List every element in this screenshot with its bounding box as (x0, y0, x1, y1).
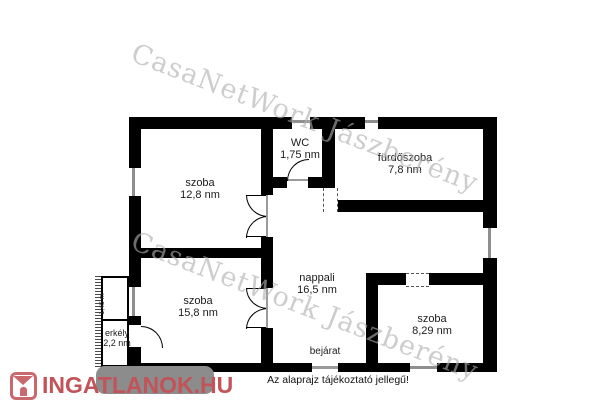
room-area: 2,2 nm (98, 338, 136, 348)
room-area: 1,75 nm (270, 149, 330, 161)
window (132, 287, 135, 316)
entrance-door (312, 366, 338, 369)
room-area: 7,8 nm (355, 164, 455, 176)
ingatlanok-house-icon (10, 372, 37, 400)
room-label-furdoszoba: fürdőszoba 7,8 nm (355, 152, 455, 176)
wall-opening-dashed (323, 188, 338, 212)
wall-segment (261, 237, 273, 288)
room-name: szoba (158, 295, 238, 307)
wall-segment (141, 248, 261, 258)
door-arc (246, 216, 268, 238)
window (132, 168, 135, 196)
wall-segment (378, 117, 497, 129)
wall-segment (338, 363, 410, 372)
room-label-szoba-1: szoba 12,8 nm (160, 177, 240, 201)
room-name: erkély (98, 328, 136, 338)
wall-segment (308, 177, 335, 188)
wall-segment (429, 273, 497, 285)
room-area: 8,29 nm (392, 325, 472, 337)
room-label-szoba-2: szoba 15,8 nm (158, 295, 238, 319)
room-name: fürdőszoba (355, 152, 455, 164)
wall-segment (335, 200, 483, 212)
disclaimer-text: Az alaprajz tájékoztató jellegű! (253, 374, 423, 386)
wall-segment (129, 196, 141, 287)
room-area: 12,8 nm (160, 189, 240, 201)
wall-segment (129, 316, 141, 325)
room-name: szoba (160, 177, 240, 189)
window (410, 366, 437, 369)
wall-opening-dashed (406, 273, 429, 287)
door-arc (246, 195, 268, 217)
door-arc (246, 288, 268, 309)
door-arc (246, 308, 268, 329)
room-label-erkely: erkély 2,2 nm (98, 328, 136, 348)
house-roof-shape (13, 376, 33, 385)
entrance-label: bejárat (291, 346, 359, 357)
wall-segment (261, 328, 273, 363)
room-area: 15,8 nm (158, 307, 238, 319)
room-name: nappali (277, 272, 357, 284)
wall-segment (310, 117, 365, 129)
ingatlanok-logo-text: INGATLANOK.HU (42, 373, 233, 398)
wall-segment (483, 117, 497, 228)
room-label-nappali: nappali 16,5 nm (277, 272, 357, 296)
wall-segment (129, 117, 292, 129)
room-label-wc: WC 1,75 nm (270, 137, 330, 161)
room-name: WC (270, 137, 330, 149)
wall-segment (366, 273, 378, 364)
house-door-shape (20, 387, 27, 396)
window (365, 120, 378, 123)
balcony-dimension-label: 1,45 m (99, 288, 109, 320)
room-area: 16,5 nm (277, 284, 357, 296)
door-arc (141, 326, 163, 348)
window (292, 120, 310, 123)
room-name: szoba (392, 313, 472, 325)
door-closed-line (266, 195, 268, 237)
wall-segment (129, 117, 141, 168)
door-arc (287, 159, 309, 181)
room-label-szoba-3: szoba 8,29 nm (392, 313, 472, 337)
wall-segment (261, 177, 287, 188)
door-closed-line (266, 288, 268, 328)
window (488, 228, 491, 258)
floor-plan-canvas: CasaNetWork Jászberény CasaNetWork Jászb… (0, 0, 603, 406)
